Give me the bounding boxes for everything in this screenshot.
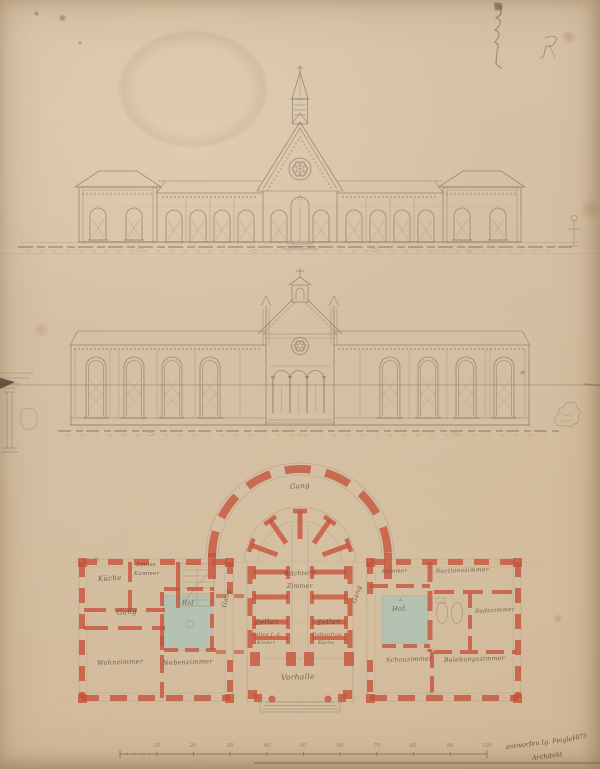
room-label-living-room: Wohnzimmer — [97, 658, 144, 666]
room-label-attendant-2: Küche — [318, 642, 335, 647]
room-label-pantry-2: Kammer — [134, 572, 160, 578]
room-label-courtyard-right-2: Hof. — [392, 605, 407, 612]
courtyard-right — [382, 596, 428, 643]
rose-window-lower — [292, 338, 309, 355]
scale-tick-label: 100 — [480, 744, 494, 750]
room-label-attendant-1: Todtenfrau — [312, 634, 342, 639]
scale-tick-label: 10 — [150, 744, 164, 750]
molding-profile-sketches — [494, 3, 557, 69]
drawing-sheet: Gang Wächter's Zimmer Zellen Zellen Zell… — [0, 0, 600, 769]
elevation-upper — [18, 65, 580, 252]
room-label-entrance-hall: Vorhalle — [281, 673, 315, 682]
room-label-kitchen: Küche — [98, 575, 122, 583]
room-label-hallway: Gang — [117, 609, 137, 617]
scale-tick-label: 70 — [370, 744, 384, 750]
scale-tick-label: 20 — [186, 744, 200, 750]
scale-tick-label: 40 — [260, 744, 274, 750]
room-label-courtyard-right-1: z. — [399, 598, 404, 603]
room-label-side-room: Nebenzimmer — [163, 658, 213, 666]
room-label-children-cells-1: Zellen f. d. — [252, 634, 282, 639]
figure-sketch — [568, 216, 580, 247]
scale-bar — [120, 750, 600, 763]
spire — [290, 65, 310, 124]
room-label-warden-2: Zimmer — [287, 584, 313, 590]
shrub-sketch — [555, 403, 581, 427]
scale-tick-label: 90 — [443, 744, 457, 750]
ground-plan — [60, 460, 600, 763]
room-label-pantry-1: Speise — [136, 563, 156, 569]
drawing-canvas — [0, 0, 600, 769]
column-fragment-sketch — [0, 373, 600, 452]
scale-tick-label: 60 — [333, 744, 347, 750]
bell-gable — [289, 268, 311, 302]
scale-tick-label: 30 — [223, 744, 237, 750]
room-label-chamber: Kammer — [382, 569, 408, 575]
elevation-lower — [58, 268, 580, 436]
room-label-courtyard-left: Hof — [182, 600, 194, 607]
room-label-children-cells-2: Kinder — [257, 642, 275, 647]
scale-tick-label: 50 — [296, 744, 310, 750]
portal-arcade — [265, 366, 335, 423]
bath-fixtures — [436, 598, 463, 624]
scale-tick-label: 80 — [406, 744, 420, 750]
